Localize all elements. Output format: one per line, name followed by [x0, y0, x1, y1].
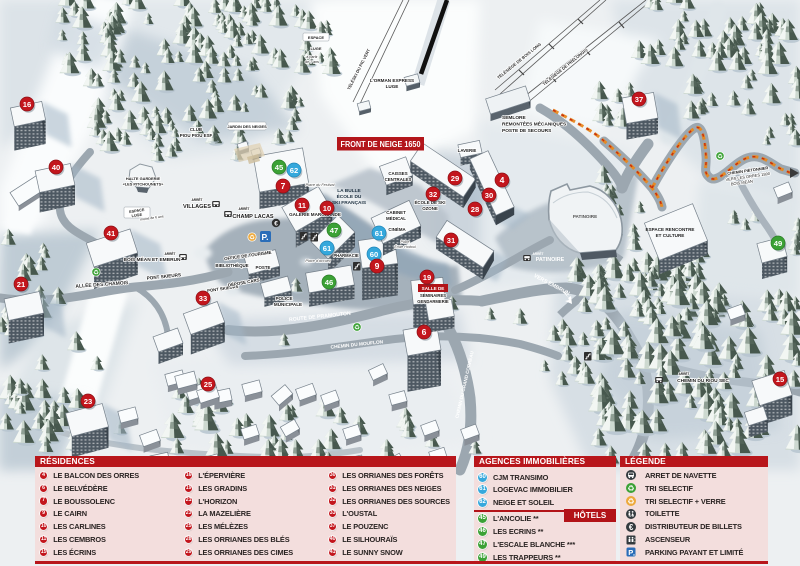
svg-text:Place: Place — [401, 240, 410, 244]
svg-text:10: 10 — [323, 204, 331, 213]
svg-text:33: 33 — [199, 294, 207, 303]
svg-text:37: 37 — [635, 95, 643, 104]
svg-text:LA BULLE: LA BULLE — [337, 188, 361, 194]
svg-text:de 7 ans: de 7 ans — [305, 60, 319, 64]
svg-text:CABINET: CABINET — [386, 210, 406, 215]
svg-text:€: € — [274, 221, 278, 228]
svg-text:♻: ♻ — [249, 234, 255, 241]
svg-text:MÉDICAL: MÉDICAL — [386, 216, 406, 221]
svg-text:28: 28 — [471, 205, 479, 214]
svg-text:«LES PITCHOUNETS»: «LES PITCHOUNETS» — [123, 182, 164, 187]
svg-text:PHARMACIE: PHARMACIE — [333, 253, 359, 258]
svg-text:L'ORMAN EXPRESS: L'ORMAN EXPRESS — [370, 78, 414, 83]
svg-text:JARDIN DES NEIGES: JARDIN DES NEIGES — [227, 124, 267, 129]
svg-text:11: 11 — [298, 201, 307, 210]
svg-text:SALLE DE: SALLE DE — [422, 286, 445, 291]
svg-text:♻: ♻ — [354, 324, 360, 331]
svg-text:CLUB: CLUB — [190, 127, 202, 132]
svg-text:46: 46 — [325, 278, 333, 287]
svg-text:€: € — [629, 523, 634, 532]
svg-text:60: 60 — [370, 250, 378, 259]
svg-text:VILLAGES: VILLAGES — [183, 204, 211, 210]
svg-text:CHEMIN DU RIOU SEC: CHEMIN DU RIOU SEC — [677, 378, 729, 384]
svg-text:Place d'accueil: Place d'accueil — [305, 259, 330, 263]
svg-text:ARRÊT: ARRÊT — [239, 206, 250, 211]
svg-text:PATINOIRE: PATINOIRE — [573, 214, 597, 219]
svg-text:POSTE DE SECOURS: POSTE DE SECOURS — [502, 128, 552, 134]
svg-text:ESPACE RENCONTRE: ESPACE RENCONTRE — [646, 227, 695, 232]
svg-text:30: 30 — [485, 191, 493, 200]
svg-text:15: 15 — [776, 375, 785, 384]
svg-text:SKI FRANÇAIS: SKI FRANÇAIS — [332, 200, 367, 206]
svg-text:62: 62 — [290, 166, 298, 175]
svg-text:GENDARMERIE: GENDARMERIE — [417, 299, 449, 304]
svg-text:PIOU PIOU ESF: PIOU PIOU ESF — [180, 133, 213, 138]
svg-text:ARRÊT: ARRÊT — [679, 371, 690, 376]
svg-text:32: 32 — [429, 190, 437, 199]
svg-text:41: 41 — [107, 229, 116, 238]
svg-text:CINÉMA: CINÉMA — [388, 227, 406, 232]
svg-text:LUGE: LUGE — [310, 46, 321, 51]
svg-text:OZONE: OZONE — [422, 206, 438, 211]
svg-text:Émile Hodoul: Émile Hodoul — [394, 244, 416, 249]
svg-text:LUGE: LUGE — [386, 84, 399, 89]
svg-text:♻: ♻ — [93, 269, 99, 276]
svg-text:LAVERIE: LAVERIE — [458, 148, 477, 153]
svg-text:MUNICIPALE: MUNICIPALE — [274, 302, 302, 307]
svg-text:P.: P. — [262, 232, 269, 242]
svg-text:SÉMINAIRES: SÉMINAIRES — [420, 293, 446, 298]
svg-text:4: 4 — [500, 175, 505, 185]
svg-text:49: 49 — [774, 239, 782, 248]
svg-text:21: 21 — [17, 280, 26, 289]
svg-text:à partir: à partir — [306, 55, 318, 59]
svg-text:19: 19 — [423, 273, 431, 282]
svg-text:BIBLIOTHÈQUE: BIBLIOTHÈQUE — [215, 263, 248, 268]
svg-text:61: 61 — [323, 244, 332, 253]
svg-text:45: 45 — [275, 163, 284, 172]
svg-text:P: P — [628, 548, 633, 557]
svg-text:♻︎: ♻︎ — [627, 497, 634, 506]
svg-text:♻: ♻ — [717, 153, 723, 160]
svg-text:PATINOIRE: PATINOIRE — [536, 257, 565, 263]
svg-text:47: 47 — [330, 226, 338, 235]
svg-text:40: 40 — [52, 163, 60, 172]
svg-text:CAISSES: CAISSES — [388, 171, 407, 176]
svg-text:ARRÊT: ARRÊT — [192, 197, 203, 202]
svg-text:6: 6 — [422, 327, 427, 337]
svg-text:29: 29 — [451, 174, 459, 183]
svg-text:ARRÊT: ARRÊT — [165, 251, 176, 256]
svg-text:Place du Festival: Place du Festival — [306, 183, 335, 187]
svg-text:CENTRALES: CENTRALES — [385, 177, 412, 182]
svg-text:SEMLORE: SEMLORE — [502, 115, 527, 121]
svg-text:ARRÊT: ARRÊT — [533, 251, 544, 256]
svg-text:25: 25 — [204, 380, 213, 389]
svg-text:♻︎: ♻︎ — [627, 484, 634, 493]
svg-text:16: 16 — [23, 100, 31, 109]
svg-text:POSTE: POSTE — [256, 265, 271, 270]
svg-text:ET CULTURE: ET CULTURE — [656, 233, 685, 238]
svg-text:7: 7 — [281, 181, 286, 191]
svg-text:ESPACE: ESPACE — [308, 35, 324, 40]
svg-text:61: 61 — [375, 229, 384, 238]
svg-text:POLICE: POLICE — [275, 296, 292, 301]
svg-text:HALTE GARDERIE: HALTE GARDERIE — [126, 176, 161, 181]
svg-text:CHAMP LACAS: CHAMP LACAS — [232, 214, 273, 220]
svg-text:9: 9 — [375, 261, 380, 271]
svg-text:31: 31 — [447, 236, 456, 245]
svg-text:FRONT DE NEIGE 1650: FRONT DE NEIGE 1650 — [341, 140, 421, 149]
svg-text:23: 23 — [84, 397, 92, 406]
